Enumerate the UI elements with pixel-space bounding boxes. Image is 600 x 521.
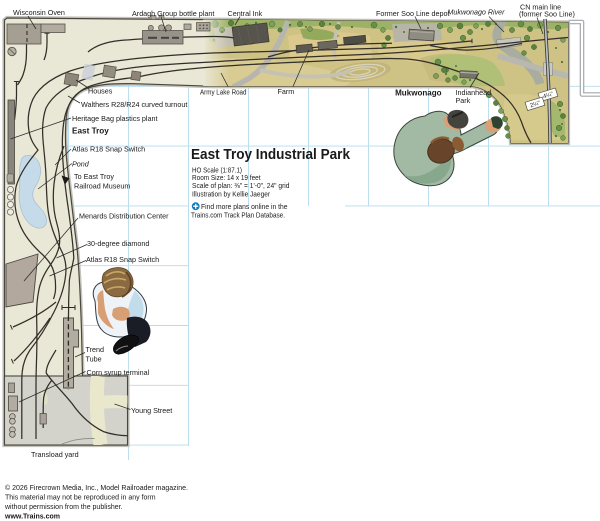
svg-text:without permission from the pu: without permission from the publisher. <box>4 504 123 511</box>
svg-text:Atlas R18 Snap Switch: Atlas R18 Snap Switch <box>86 255 159 264</box>
svg-text:Central Ink: Central Ink <box>228 9 263 18</box>
svg-text:Mukwonago River: Mukwonago River <box>448 7 506 16</box>
svg-text:This material may not be repro: This material may not be reproduced in a… <box>5 495 156 502</box>
svg-text:Scale of plan: ⅜" = 1'-0", 24": Scale of plan: ⅜" = 1'-0", 24" grid <box>192 183 290 190</box>
svg-text:Atlas R18 Snap Switch: Atlas R18 Snap Switch <box>72 145 145 154</box>
svg-text:East Troy Industrial Park: East Troy Industrial Park <box>191 146 350 163</box>
svg-text:© 2026 Firecrown Media, Inc.,: © 2026 Firecrown Media, Inc., Model Rail… <box>5 484 188 492</box>
svg-text:Trains.com Track Plan Database: Trains.com Track Plan Database. <box>191 212 285 219</box>
svg-text:Find more plans online in the: Find more plans online in the <box>201 204 288 211</box>
svg-text:Transload yard: Transload yard <box>31 450 79 459</box>
svg-text:30-degree diamond: 30-degree diamond <box>87 239 149 248</box>
svg-text:Railroad Museum: Railroad Museum <box>74 182 130 191</box>
svg-text:Trend: Trend <box>86 345 105 354</box>
svg-text:Wisconsin Oven: Wisconsin Oven <box>13 8 65 17</box>
svg-text:Army Lake Road: Army Lake Road <box>200 87 247 96</box>
svg-text:Park: Park <box>456 96 471 105</box>
svg-text:Room Size: 14 x 19 feet: Room Size: 14 x 19 feet <box>192 175 261 182</box>
svg-text:Walthers R28/R24 curved turnou: Walthers R28/R24 curved turnout <box>81 100 187 109</box>
svg-text:Former Soo Line depot: Former Soo Line depot <box>376 9 450 18</box>
svg-text:(former Soo Line): (former Soo Line) <box>519 10 575 19</box>
svg-text:Farm: Farm <box>278 87 295 96</box>
svg-text:Young Street: Young Street <box>131 406 172 415</box>
svg-text:www.Trains.com: www.Trains.com <box>4 514 60 521</box>
svg-text:Corn syrup terminal: Corn syrup terminal <box>87 368 150 377</box>
svg-text:Tube: Tube <box>86 355 102 364</box>
svg-text:Menards Distribution Center: Menards Distribution Center <box>79 212 169 221</box>
svg-text:To East Troy: To East Troy <box>74 172 114 181</box>
svg-text:HO Scale (1:87.1): HO Scale (1:87.1) <box>192 168 242 175</box>
svg-text:Illustration by Kellie Jaeger: Illustration by Kellie Jaeger <box>192 191 271 198</box>
svg-text:East Troy: East Troy <box>72 127 109 136</box>
svg-text:Ardagh Group bottle plant: Ardagh Group bottle plant <box>132 9 214 18</box>
svg-text:Mukwonago: Mukwonago <box>395 88 442 98</box>
svg-text:Houses: Houses <box>88 87 113 96</box>
svg-text:Pond: Pond <box>72 160 90 169</box>
svg-text:Heritage Bag plastics plant: Heritage Bag plastics plant <box>72 114 158 123</box>
